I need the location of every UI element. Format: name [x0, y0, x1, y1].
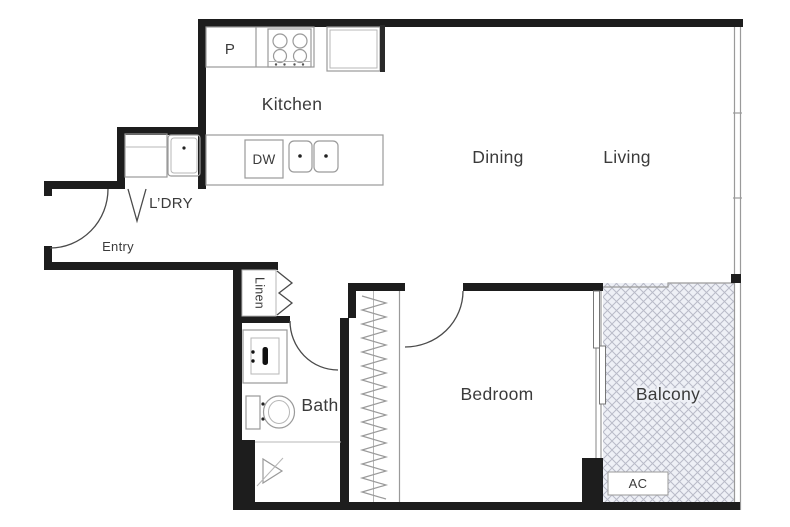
- balcony-label: Balcony: [636, 384, 700, 404]
- washing-machine-icon: [125, 134, 167, 177]
- fridge-icon: [327, 25, 385, 72]
- wall-segment: [44, 181, 125, 189]
- bath-door-swing: [290, 321, 338, 370]
- ac-label: AC: [629, 476, 648, 491]
- bath-label: Bath: [301, 395, 338, 415]
- entry-label: Entry: [102, 239, 134, 254]
- linen-bifold-door: [277, 271, 292, 315]
- wall-segment: [463, 283, 603, 291]
- floor-plan: Kitchen Dining Living Bedroom Balcony Ba…: [0, 0, 790, 527]
- wardrobe: [362, 291, 400, 502]
- wall-segment: [198, 19, 743, 27]
- wall-segment: [348, 283, 405, 291]
- toilet-icon: [246, 396, 295, 429]
- wall-segment: [198, 19, 206, 189]
- cooktop-icon: [268, 29, 311, 67]
- pantry-label: P: [225, 41, 235, 58]
- laundry-bifold-door: [128, 189, 146, 221]
- laundry-fixtures: [125, 134, 200, 177]
- door-jamb: [44, 181, 52, 196]
- wall-segment: [117, 127, 125, 189]
- wall-segment: [44, 262, 278, 270]
- window-wall: [733, 27, 742, 274]
- bedroom-label: Bedroom: [460, 384, 533, 404]
- laundry-label: L’DRY: [149, 195, 193, 212]
- laundry-tub-icon: [168, 135, 200, 176]
- slider-panel: [594, 291, 600, 348]
- slider-panel: [600, 346, 606, 404]
- wall-segment: [340, 318, 349, 502]
- service-shaft: [233, 440, 255, 502]
- living-label: Living: [603, 147, 651, 167]
- linen-label: Linen: [253, 277, 267, 309]
- dining-label: Dining: [472, 147, 523, 167]
- wall-segment: [233, 316, 290, 323]
- kitchen-sink-icon: [289, 141, 338, 172]
- entry-door-swing: [50, 189, 108, 248]
- kitchen-bench: [206, 135, 383, 185]
- shower-head-icon: [257, 458, 283, 486]
- wall-segment: [233, 502, 740, 510]
- bedroom-door-swing: [405, 291, 463, 347]
- wall-cap: [731, 274, 741, 283]
- wall-pier: [582, 458, 603, 504]
- kitchen-label: Kitchen: [262, 94, 322, 114]
- floor-plan-canvas: Kitchen Dining Living Bedroom Balcony Ba…: [0, 0, 790, 527]
- vanity-icon: [243, 330, 287, 383]
- dishwasher-label: DW: [252, 152, 275, 167]
